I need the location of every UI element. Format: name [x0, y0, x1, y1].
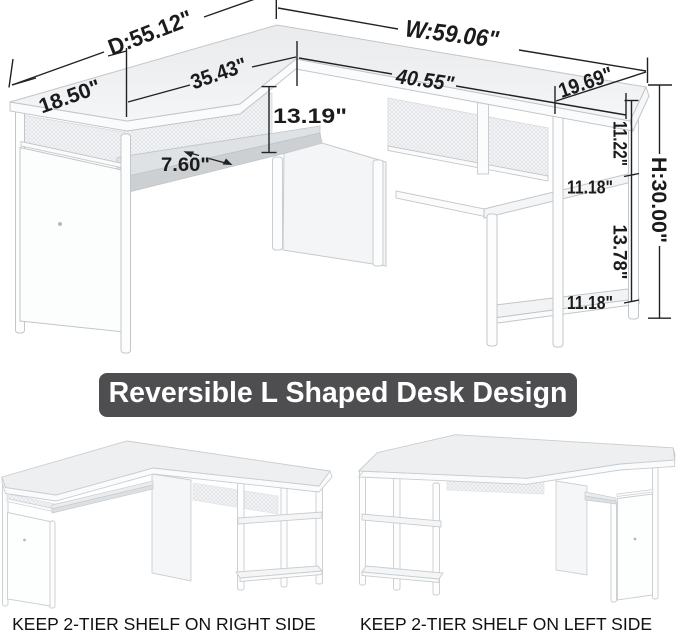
svg-text:Reversible L Shaped Desk Desig: Reversible L Shaped Desk Design [109, 377, 568, 409]
svg-text:H:30.00": H:30.00" [647, 157, 670, 243]
svg-text:11.22": 11.22" [609, 121, 630, 166]
svg-text:KEEP 2-TIER SHELF ON RIGHT SID: KEEP 2-TIER SHELF ON RIGHT SIDE [12, 614, 316, 634]
svg-text:KEEP 2-TIER SHELF ON LEFT SIDE: KEEP 2-TIER SHELF ON LEFT SIDE [360, 614, 652, 634]
svg-text:13.78": 13.78" [609, 225, 630, 280]
svg-text:11.18": 11.18" [567, 178, 613, 198]
svg-text:7.60": 7.60" [161, 155, 210, 176]
svg-text:13.19": 13.19" [273, 105, 347, 128]
svg-text:11.18": 11.18" [567, 293, 613, 313]
